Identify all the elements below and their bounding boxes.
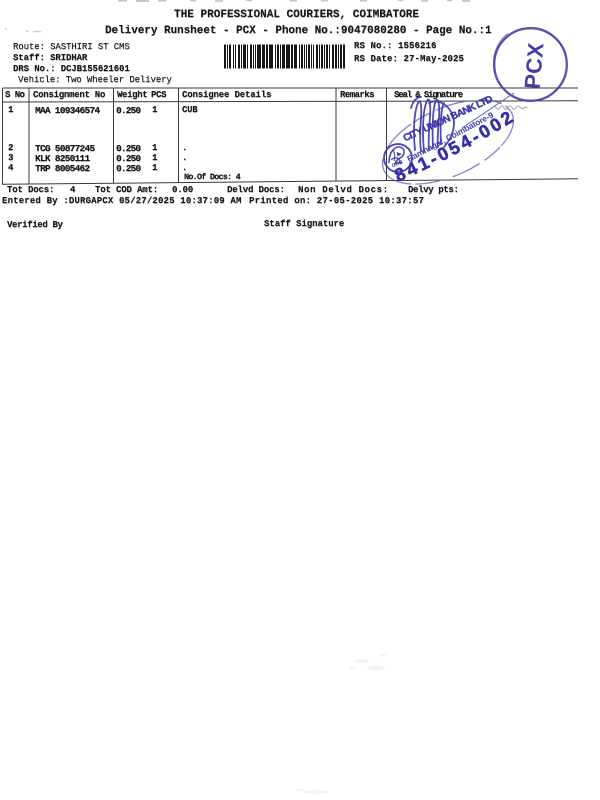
svg-text:PCX: PCX xyxy=(520,41,549,89)
